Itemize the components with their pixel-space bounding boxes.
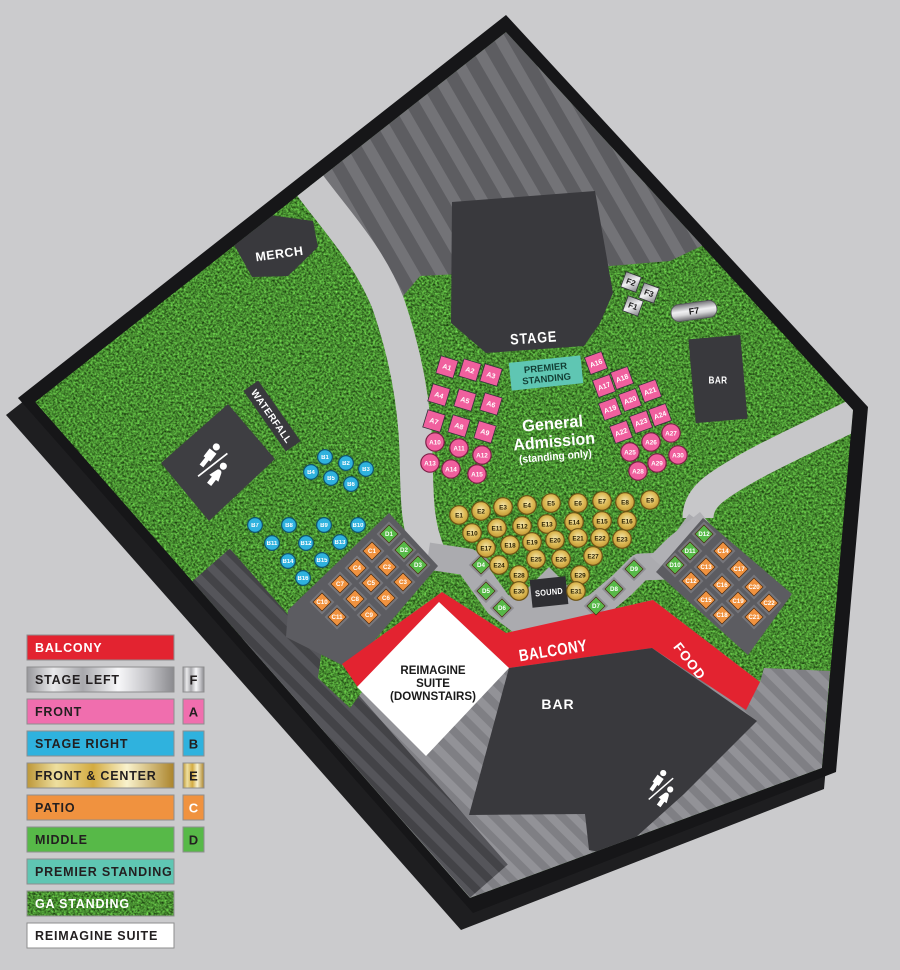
- svg-text:A30: A30: [672, 452, 684, 459]
- svg-text:(DOWNSTAIRS): (DOWNSTAIRS): [390, 691, 476, 703]
- svg-text:GA STANDING: GA STANDING: [35, 897, 130, 911]
- svg-text:E18: E18: [504, 542, 516, 549]
- svg-text:C: C: [189, 801, 199, 816]
- svg-text:E13: E13: [541, 521, 553, 528]
- svg-text:PREMIER STANDING: PREMIER STANDING: [35, 865, 173, 879]
- svg-text:E28: E28: [513, 572, 525, 579]
- svg-text:A: A: [189, 705, 199, 720]
- svg-text:FRONT & CENTER: FRONT & CENTER: [35, 769, 157, 783]
- svg-text:C5: C5: [367, 580, 375, 587]
- svg-text:C16: C16: [716, 582, 728, 589]
- svg-text:D: D: [189, 833, 198, 848]
- svg-text:C18: C18: [716, 612, 728, 619]
- svg-text:E11: E11: [491, 525, 502, 532]
- svg-text:E10: E10: [466, 530, 478, 537]
- svg-text:B1: B1: [321, 455, 329, 461]
- svg-text:A13: A13: [424, 460, 436, 467]
- svg-text:A11: A11: [453, 445, 465, 452]
- svg-text:B: B: [189, 737, 198, 752]
- svg-text:A27: A27: [665, 430, 677, 437]
- svg-text:C17: C17: [733, 566, 745, 573]
- svg-text:B6: B6: [347, 482, 355, 488]
- svg-text:E22: E22: [594, 535, 606, 542]
- svg-text:D3: D3: [414, 562, 422, 569]
- svg-text:A29: A29: [651, 460, 663, 467]
- svg-text:D4: D4: [477, 562, 485, 569]
- svg-text:C14: C14: [717, 548, 729, 555]
- svg-text:E6: E6: [574, 500, 582, 507]
- svg-text:D10: D10: [669, 562, 681, 569]
- svg-text:BALCONY: BALCONY: [35, 641, 102, 655]
- svg-text:D2: D2: [400, 547, 408, 554]
- svg-text:REIMAGINE SUITE: REIMAGINE SUITE: [35, 929, 158, 943]
- svg-text:E17: E17: [480, 545, 492, 552]
- svg-text:C21: C21: [748, 614, 760, 621]
- svg-text:B16: B16: [297, 576, 309, 582]
- svg-text:A10: A10: [429, 439, 441, 446]
- svg-text:E26: E26: [555, 556, 567, 563]
- svg-text:B15: B15: [316, 558, 328, 564]
- svg-text:C3: C3: [399, 579, 407, 586]
- svg-text:C7: C7: [336, 581, 344, 588]
- svg-text:D1: D1: [385, 531, 393, 538]
- svg-text:B7: B7: [251, 523, 259, 529]
- svg-text:C4: C4: [353, 565, 361, 572]
- svg-text:D9: D9: [630, 566, 638, 573]
- svg-text:C13: C13: [700, 564, 712, 571]
- svg-text:E31: E31: [570, 588, 582, 595]
- svg-text:E23: E23: [616, 536, 628, 543]
- svg-text:E12: E12: [516, 523, 528, 530]
- svg-text:E9: E9: [646, 497, 654, 504]
- svg-text:SUITE: SUITE: [416, 678, 450, 690]
- svg-text:D7: D7: [592, 603, 600, 610]
- svg-text:C11: C11: [331, 614, 343, 621]
- svg-text:C19: C19: [732, 598, 744, 605]
- svg-text:B8: B8: [285, 523, 293, 529]
- svg-text:E3: E3: [499, 504, 507, 511]
- svg-text:B12: B12: [300, 541, 312, 547]
- svg-text:E24: E24: [493, 562, 505, 569]
- svg-text:C6: C6: [382, 595, 390, 602]
- svg-text:E14: E14: [568, 519, 580, 526]
- svg-text:E7: E7: [598, 498, 606, 505]
- svg-text:E19: E19: [526, 539, 538, 546]
- svg-text:B5: B5: [327, 476, 335, 482]
- svg-text:FRONT: FRONT: [35, 705, 82, 719]
- svg-text:E29: E29: [574, 572, 586, 579]
- svg-text:B10: B10: [352, 523, 364, 529]
- svg-text:D11: D11: [684, 548, 696, 555]
- svg-text:D5: D5: [482, 588, 490, 595]
- svg-text:BAR: BAR: [709, 375, 728, 387]
- svg-text:A25: A25: [624, 449, 636, 456]
- svg-text:E: E: [189, 769, 198, 784]
- svg-text:B2: B2: [342, 461, 350, 467]
- svg-text:E16: E16: [621, 518, 633, 525]
- svg-text:REIMAGINE: REIMAGINE: [400, 665, 466, 677]
- svg-text:B9: B9: [320, 523, 328, 529]
- svg-text:PATIO: PATIO: [35, 801, 75, 815]
- svg-text:B4: B4: [307, 470, 315, 476]
- svg-text:B13: B13: [334, 540, 346, 546]
- svg-text:A28: A28: [632, 468, 644, 475]
- svg-text:D6: D6: [498, 605, 506, 612]
- svg-text:C22: C22: [763, 600, 775, 607]
- svg-text:A14: A14: [445, 466, 457, 473]
- svg-text:E27: E27: [587, 553, 599, 560]
- svg-text:B3: B3: [362, 467, 370, 473]
- svg-text:C8: C8: [351, 596, 359, 603]
- svg-text:E21: E21: [572, 535, 584, 542]
- svg-text:E8: E8: [621, 499, 629, 506]
- svg-text:C12: C12: [685, 578, 697, 585]
- svg-text:A15: A15: [471, 471, 483, 478]
- svg-text:C10: C10: [316, 599, 328, 606]
- svg-text:A12: A12: [476, 452, 488, 459]
- svg-text:C20: C20: [748, 584, 760, 591]
- svg-text:A26: A26: [645, 439, 657, 446]
- svg-text:C15: C15: [700, 597, 712, 604]
- svg-text:E25: E25: [530, 556, 542, 563]
- svg-text:MIDDLE: MIDDLE: [35, 833, 88, 847]
- svg-text:E4: E4: [523, 502, 531, 509]
- svg-text:B14: B14: [282, 559, 294, 565]
- svg-text:D8: D8: [610, 586, 618, 593]
- svg-text:D12: D12: [698, 531, 710, 538]
- svg-text:B11: B11: [267, 541, 278, 547]
- svg-text:E1: E1: [455, 512, 463, 519]
- svg-text:E15: E15: [596, 518, 608, 525]
- svg-text:F7: F7: [688, 305, 700, 316]
- svg-text:E2: E2: [477, 508, 485, 515]
- svg-text:C9: C9: [365, 612, 373, 619]
- svg-text:E5: E5: [547, 500, 555, 507]
- svg-text:E20: E20: [549, 537, 561, 544]
- svg-text:F: F: [190, 673, 198, 688]
- svg-text:STAGE RIGHT: STAGE RIGHT: [35, 737, 128, 751]
- svg-text:STAGE: STAGE: [510, 328, 558, 348]
- svg-text:BAR: BAR: [541, 696, 574, 712]
- svg-text:E30: E30: [513, 588, 525, 595]
- svg-text:STAGE LEFT: STAGE LEFT: [35, 673, 120, 687]
- svg-text:C1: C1: [368, 548, 376, 555]
- svg-text:C2: C2: [383, 564, 391, 571]
